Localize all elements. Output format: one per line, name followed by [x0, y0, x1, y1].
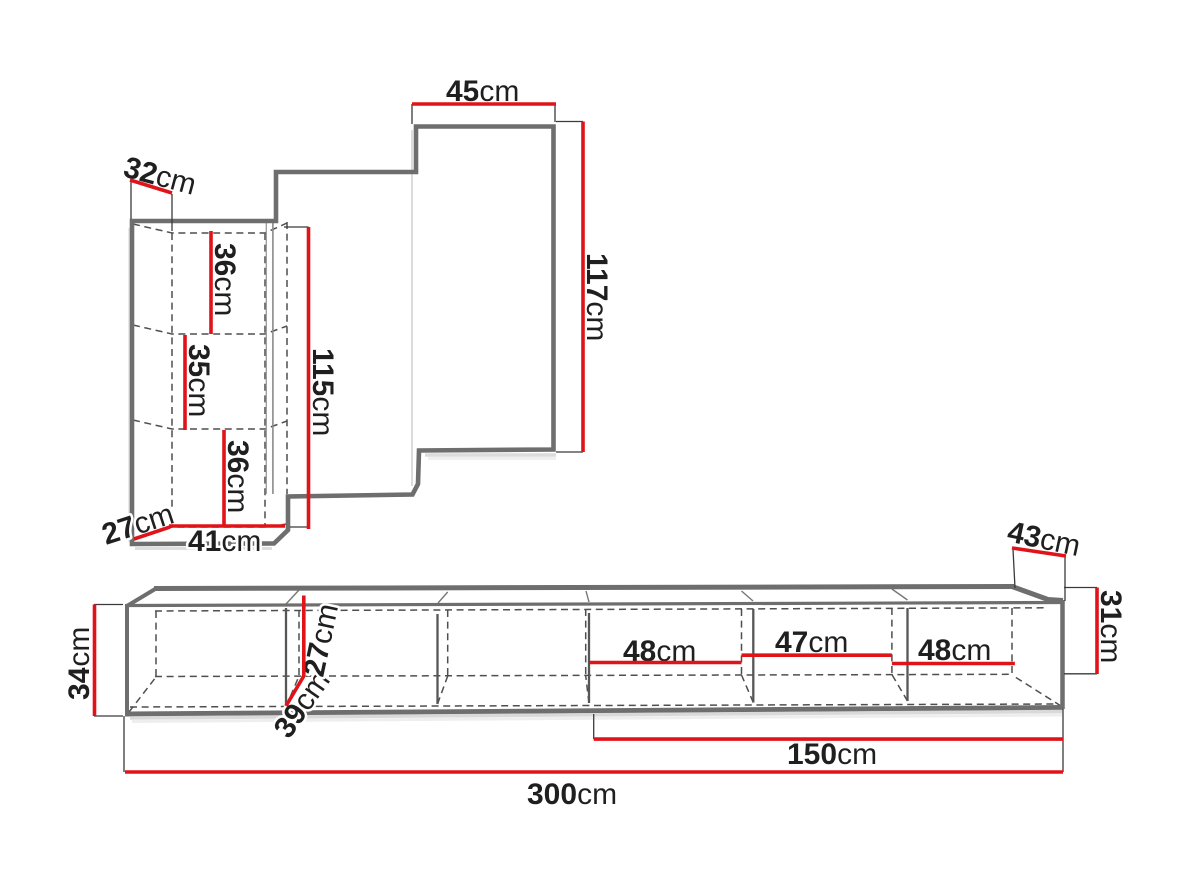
svg-text:150cm: 150cm	[787, 738, 877, 771]
svg-text:34cm: 34cm	[63, 627, 96, 700]
svg-text:36cm: 36cm	[208, 243, 241, 316]
svg-text:115cm: 115cm	[306, 348, 339, 436]
svg-text:117cm: 117cm	[580, 253, 613, 341]
svg-text:41cm: 41cm	[188, 525, 261, 558]
svg-text:31cm: 31cm	[1094, 590, 1127, 663]
svg-text:35cm: 35cm	[182, 344, 215, 417]
svg-text:36cm: 36cm	[221, 440, 254, 513]
svg-text:300cm: 300cm	[527, 778, 617, 811]
